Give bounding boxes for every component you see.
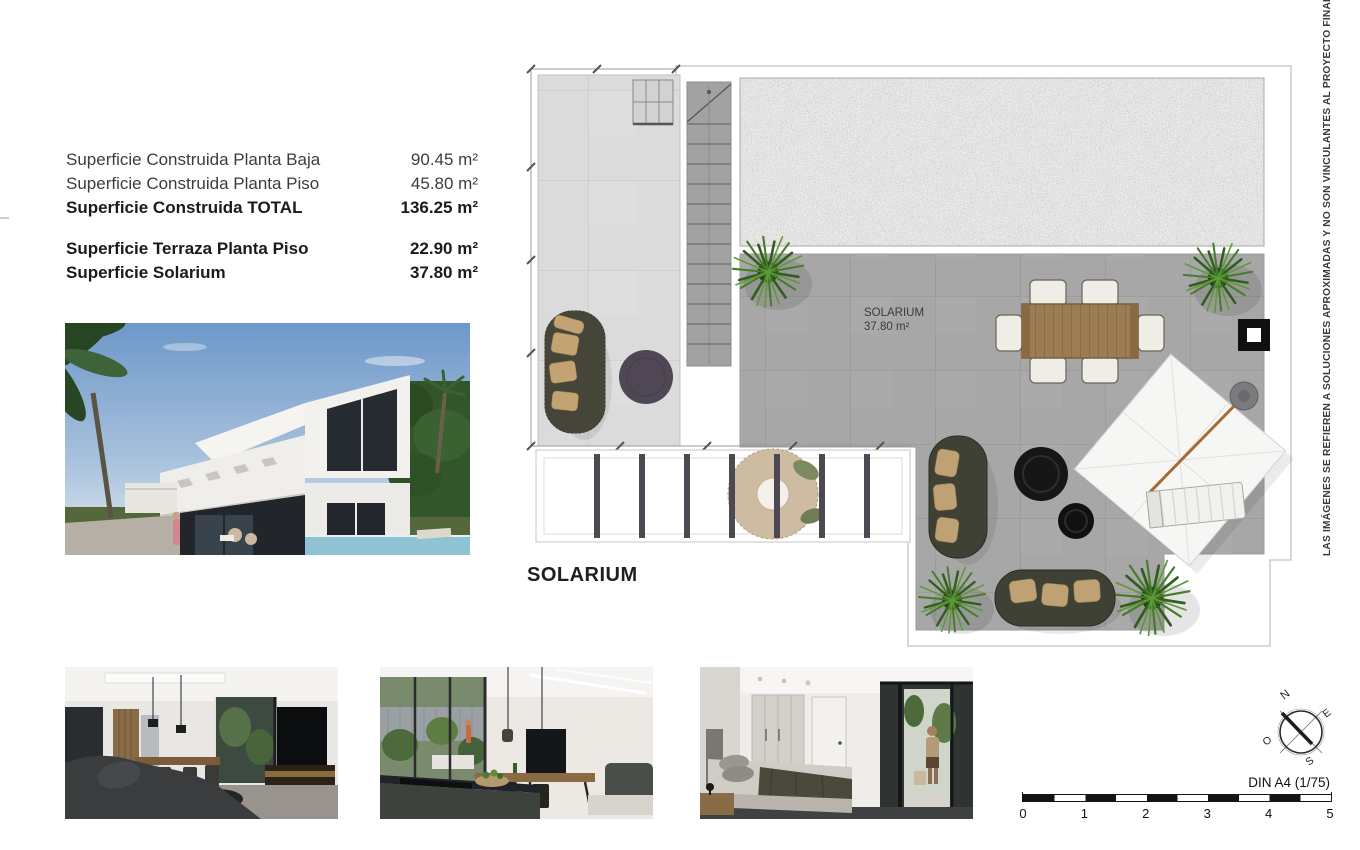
table-row: Superficie Solarium 37.80 m² (66, 261, 478, 285)
scale-tick-label: 3 (1204, 806, 1211, 821)
glass-doors (880, 683, 973, 819)
scale-format-label: DIN A4 (1/75) (1150, 775, 1330, 790)
solarium-room-label: SOLARIUM (864, 307, 924, 319)
compass-s-label: S (1303, 755, 1316, 769)
chimney-vent (1238, 319, 1270, 351)
compass-needle (1282, 713, 1312, 744)
villa-exterior-photo (65, 323, 470, 555)
disclaimer-text: LAS IMÁGENES SE REFIEREN A SOLUCIONES AP… (1322, 0, 1333, 556)
living-room-photo (65, 667, 338, 819)
scale-tick-label: 4 (1265, 806, 1272, 821)
solarium-room-area: 37.80 m² (864, 321, 910, 333)
terrace-lounger (545, 311, 612, 440)
surface-value: 37.80 m² (410, 263, 478, 283)
table-row: Superficie Terraza Planta Piso 22.90 m² (66, 237, 478, 261)
pergola (536, 449, 910, 542)
outdoor-sofa (995, 570, 1122, 634)
crop-mark (0, 217, 9, 219)
surface-label: Superficie Terraza Planta Piso (66, 239, 309, 259)
scale-tick-label: 2 (1142, 806, 1149, 821)
compass-o-label: O (1260, 734, 1274, 748)
surface-value: 90.45 m² (411, 150, 478, 170)
stair-railing (633, 80, 673, 124)
surface-value: 136.25 m² (401, 198, 479, 218)
scale-bar-endtick (1331, 792, 1332, 802)
tv-screen (277, 707, 327, 765)
surface-value: 22.90 m² (410, 239, 478, 259)
table-row-total: Superficie Construida TOTAL 136.25 m² (66, 196, 478, 220)
compass-rose-icon: N E S O (1254, 684, 1344, 774)
scale-tick-label: 1 (1081, 806, 1088, 821)
brochure-page: Superficie Construida Planta Baja 90.45 … (0, 0, 1360, 850)
side-table (1230, 382, 1258, 410)
scale-bar (1023, 794, 1332, 802)
scale-bar-endtick (1022, 792, 1023, 802)
gravel-roof (740, 78, 1264, 246)
surface-label: Superficie Construida TOTAL (66, 198, 302, 218)
surface-label: Superficie Construida Planta Piso (66, 174, 319, 194)
table-row: Superficie Construida Planta Piso 45.80 … (66, 172, 478, 196)
scale-bar-numbers: 0 1 2 3 4 5 (1023, 806, 1330, 822)
compass-e-label: E (1320, 707, 1333, 721)
scale-tick-label: 5 (1326, 806, 1333, 821)
kitchen-dining-photo (380, 667, 653, 819)
scale-tick-label: 0 (1019, 806, 1026, 821)
plan-title: SOLARIUM (527, 564, 638, 587)
surface-label: Superficie Solarium (66, 263, 226, 283)
terrace-pouf (619, 350, 673, 404)
staircase (687, 82, 731, 366)
person-figure (173, 512, 180, 545)
table-row: Superficie Construida Planta Baja 90.45 … (66, 148, 478, 172)
surface-value: 45.80 m² (411, 174, 478, 194)
surface-areas-table: Superficie Construida Planta Baja 90.45 … (66, 148, 478, 285)
bedroom-photo (700, 667, 973, 819)
pool (305, 536, 470, 555)
surface-label: Superficie Construida Planta Baja (66, 150, 320, 170)
compass-n-label: N (1278, 688, 1292, 703)
